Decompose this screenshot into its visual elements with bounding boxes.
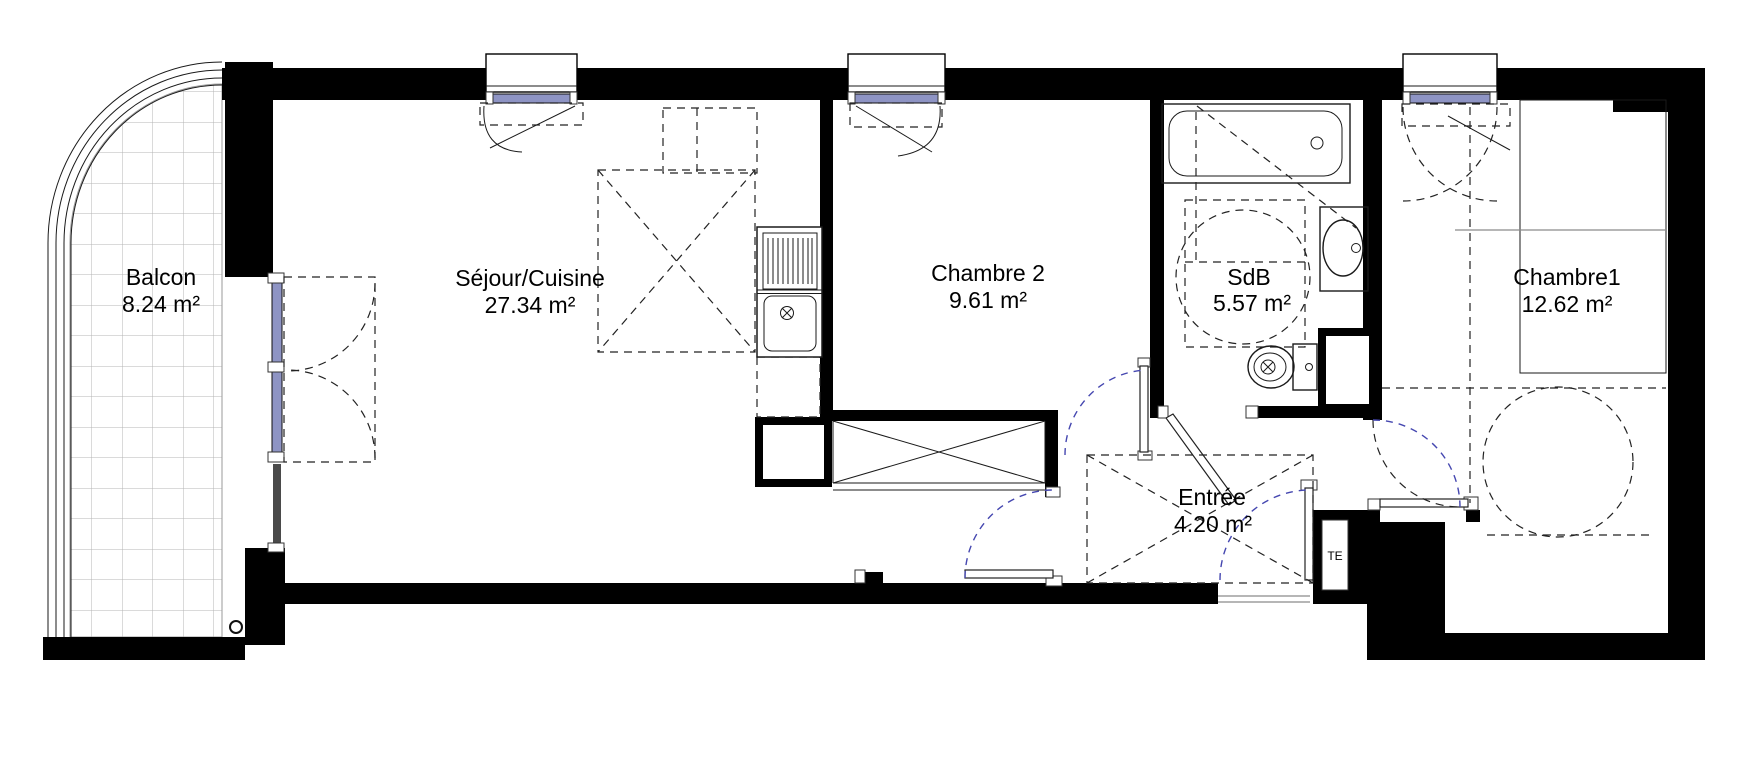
window-chambre2: [848, 54, 945, 156]
wall-bottom-right: [1445, 633, 1705, 660]
turning-circle-dashed: [1483, 387, 1633, 537]
balcony-drain-icon: [230, 621, 242, 633]
floor-plan-page: TE Balcon 8.24 m² Séjour/Cuisine 27.34 m…: [0, 0, 1757, 770]
kitchen-counter-dashed: [663, 108, 757, 173]
kitchen-island-dashed: [598, 170, 755, 352]
door-swing-arc: [965, 490, 1053, 578]
electrical-panel-label: TE: [1327, 549, 1342, 563]
wall-top-2: [577, 68, 848, 100]
window-glazing: [852, 94, 941, 103]
room-area-balcon: 8.24 m²: [122, 291, 200, 317]
fixed-panel: [273, 464, 281, 548]
room-labels: Balcon 8.24 m² Séjour/Cuisine 27.34 m² C…: [122, 260, 1621, 537]
door-swing-arc: [1065, 370, 1146, 455]
chambre1-furniture: [1382, 100, 1666, 537]
window-glazing: [490, 94, 573, 103]
duct-shaft-wc-inner: [1326, 336, 1369, 404]
room-label-chambre2: Chambre 2: [931, 260, 1045, 286]
toilet: [1248, 344, 1317, 390]
room-label-balcon: Balcon: [126, 264, 196, 290]
room-label-chambre1: Chambre1: [1513, 264, 1620, 290]
bathtub-drain-icon: [1311, 137, 1323, 149]
wall-sejour-entree: [1045, 410, 1058, 497]
room-label-sdb: SdB: [1227, 264, 1270, 290]
room-area-chambre1: 12.62 m²: [1522, 291, 1613, 317]
door-leaf: [1305, 488, 1313, 580]
bed: [1520, 100, 1666, 373]
duct-shaft-kitchen-inner: [763, 425, 824, 479]
door-chambre1: [1368, 420, 1478, 510]
room-area-sdb: 5.57 m²: [1213, 290, 1291, 316]
wall-west-upper: [225, 62, 273, 277]
wall-bottom-pillar: [865, 572, 883, 583]
room-area-entree: 4.20 m²: [1174, 511, 1252, 537]
room-label-entree: Entrée: [1178, 484, 1246, 510]
french-door-balcony: [268, 273, 375, 552]
room-area-chambre2: 9.61 m²: [949, 287, 1027, 313]
wall-wardrobe-top: [832, 410, 1053, 421]
door-swing-arc: [1373, 420, 1460, 507]
floor-plan-canvas: TE Balcon 8.24 m² Séjour/Cuisine 27.34 m…: [0, 0, 1757, 770]
threshold: [1218, 596, 1310, 602]
balcony-tiles: [70, 84, 222, 637]
door-leaf: [965, 570, 1053, 578]
washbasin: [1320, 207, 1368, 291]
wall-bottom: [262, 583, 1218, 604]
window-sejour: [480, 54, 583, 152]
window-chambre1: [1402, 54, 1510, 201]
door-post: [855, 570, 865, 583]
room-label-sejour: Séjour/Cuisine: [455, 265, 605, 291]
wall-right: [1668, 68, 1705, 660]
window-glazing: [1407, 94, 1493, 103]
room-area-sejour: 27.34 m²: [485, 292, 576, 318]
kitchen-sink: [757, 227, 822, 357]
door-leaf: [1140, 366, 1148, 452]
door-sejour-entree: [965, 487, 1062, 586]
balcony: [48, 62, 242, 637]
storage-crossed-box: [833, 421, 1053, 490]
basin-tap-icon: [1352, 244, 1361, 253]
wall-facade-step: [1367, 522, 1445, 660]
door-swing-arc: [1373, 420, 1460, 507]
wall-balcony-bottom: [43, 637, 245, 660]
bathtub: [1162, 104, 1350, 183]
toilet-flush-icon: [1263, 362, 1273, 372]
kitchen-appliance-dashed: [757, 357, 820, 417]
door-chambre2: [1065, 358, 1152, 460]
walls: [43, 62, 1705, 660]
kitchen-zone: [598, 108, 822, 417]
wall-entree-chambre1-right: [1466, 510, 1480, 522]
door-leaf: [1380, 499, 1468, 507]
wall-top-3: [945, 68, 1403, 100]
